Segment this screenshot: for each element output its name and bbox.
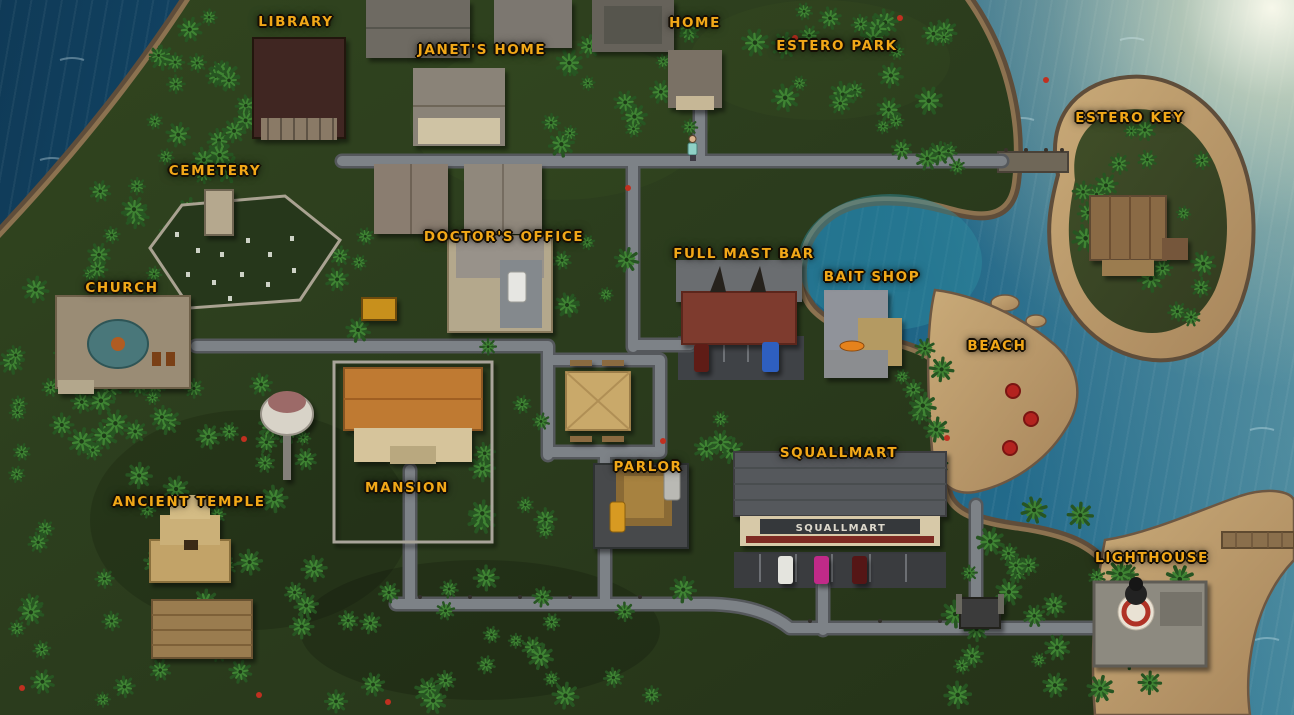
squallmart-storefront-sign: SQUALLMART (796, 523, 887, 534)
map-label-ancient-temple[interactable]: ANCIENT TEMPLE (112, 494, 265, 510)
map-label-beach[interactable]: BEACH (967, 338, 1026, 354)
map-label-estero-key[interactable]: ESTERO KEY (1075, 110, 1184, 126)
map-label-library[interactable]: LIBRARY (258, 14, 333, 30)
map-label-bait-shop[interactable]: BAIT SHOP (824, 269, 920, 285)
building-parlor[interactable] (594, 464, 688, 548)
map-label-lighthouse[interactable]: LIGHTHOUSE (1095, 550, 1209, 566)
map-label-doctors-office[interactable]: DOCTOR'S OFFICE (424, 229, 584, 245)
map-artwork: SQUALLMART (0, 0, 1294, 715)
building-home[interactable] (668, 50, 722, 110)
map-label-home[interactable]: HOME (669, 15, 721, 31)
map-label-estero-park[interactable]: ESTERO PARK (776, 38, 898, 54)
map-label-cemetery[interactable]: CEMETERY (169, 163, 261, 179)
map-label-mansion[interactable]: MANSION (365, 480, 449, 496)
market-kiosk (566, 360, 630, 442)
map-label-full-mast-bar[interactable]: FULL MAST BAR (673, 246, 815, 262)
gate (956, 594, 1004, 628)
building-janets-home[interactable] (413, 68, 505, 146)
beach-sand[interactable] (928, 290, 1077, 493)
map-label-parlor[interactable]: PARLOR (613, 459, 682, 475)
building-church[interactable] (56, 296, 190, 394)
map-label-squallmart[interactable]: SQUALLMART (780, 445, 898, 461)
map-label-church[interactable]: CHURCH (85, 280, 158, 296)
building-lighthouse[interactable] (1094, 577, 1206, 666)
island-map: SQUALLMART (0, 0, 1294, 715)
pier (1222, 532, 1294, 548)
building-library[interactable] (253, 38, 345, 140)
map-label-janets-home[interactable]: JANET'S HOME (418, 42, 546, 58)
